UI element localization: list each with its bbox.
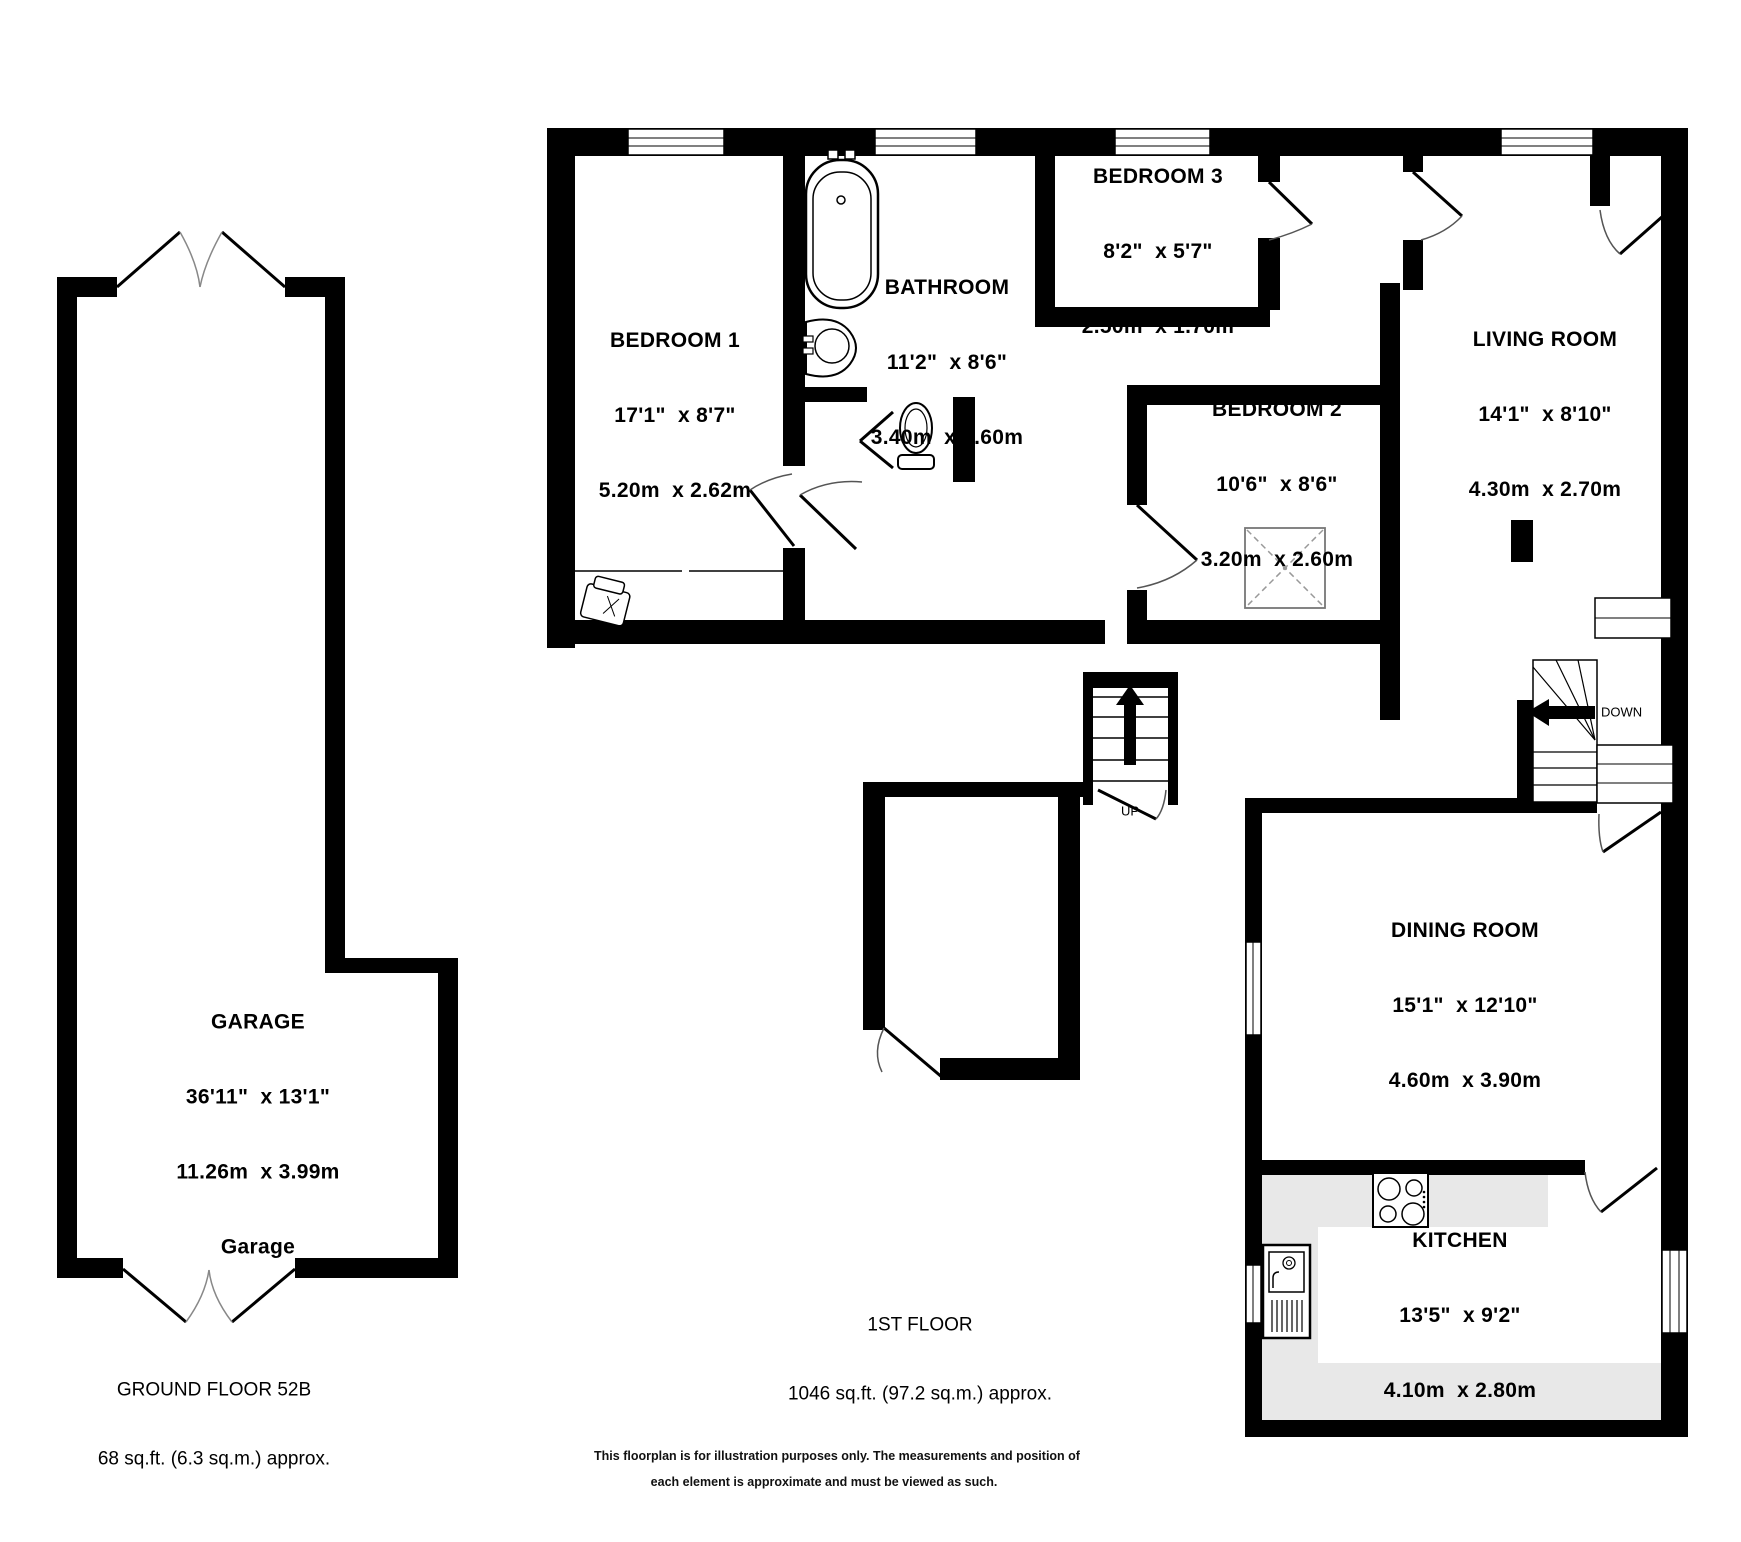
room-dims-metric: 4.30m x 2.70m xyxy=(1469,477,1621,502)
room-dims-imperial: 8'2" x 5'7" xyxy=(1082,239,1234,264)
first-floor-label: 1ST FLOOR 1046 sq.ft. (97.2 sq.m.) appro… xyxy=(788,1268,1052,1429)
room-dims-imperial: 10'6" x 8'6" xyxy=(1201,472,1353,497)
disclaimer-line1: This floorplan is for illustration purpo… xyxy=(594,1449,1080,1463)
bedroom1-label: BEDROOM 1 17'1" x 8'7" 5.20m x 2.62m xyxy=(599,278,751,528)
room-name: GARAGE xyxy=(176,1010,339,1035)
room-dims-imperial: 13'5" x 9'2" xyxy=(1384,1303,1536,1328)
stairs-down-label: DOWN xyxy=(1601,705,1642,720)
bathroom-sink xyxy=(803,320,856,377)
stairs-down xyxy=(1527,598,1673,803)
room-dims-metric: 4.10m x 2.80m xyxy=(1384,1378,1536,1403)
disclaimer-line2: each element is approximate and must be … xyxy=(651,1475,998,1489)
stairs-up-label: UP xyxy=(1121,804,1139,819)
garage-label: GARAGE 36'11" x 13'1" 11.26m x 3.99m Gar… xyxy=(176,960,339,1285)
room-dims-imperial: 17'1" x 8'7" xyxy=(599,403,751,428)
dining-room-label: DINING ROOM 15'1" x 12'10" 4.60m x 3.90m xyxy=(1389,868,1541,1118)
room-name: LIVING ROOM xyxy=(1469,327,1621,352)
room-dims-metric: 11.26m x 3.99m xyxy=(176,1160,339,1185)
floor-name: 1ST FLOOR xyxy=(788,1314,1052,1337)
kitchen-label: KITCHEN 13'5" x 9'2" 4.10m x 2.80m xyxy=(1384,1178,1536,1428)
chair xyxy=(580,574,633,626)
bedroom3-label: BEDROOM 3 8'2" x 5'7" 2.50m x 1.70m xyxy=(1082,114,1234,364)
bathtub xyxy=(806,150,878,308)
garage-sub-label: Garage xyxy=(176,1235,339,1260)
ground-floor-label: GROUND FLOOR 52B 68 sq.ft. (6.3 sq.m.) a… xyxy=(98,1333,330,1494)
room-dims-imperial: 14'1" x 8'10" xyxy=(1469,402,1621,427)
bathroom-label: BATHROOM 11'2" x 8'6" 3.40m x 2.60m xyxy=(871,225,1023,475)
room-name: BEDROOM 3 xyxy=(1082,164,1234,189)
room-dims-imperial: 11'2" x 8'6" xyxy=(871,350,1023,375)
room-dims-metric: 3.40m x 2.60m xyxy=(871,425,1023,450)
floor-name: GROUND FLOOR 52B xyxy=(98,1379,330,1402)
stairs-up xyxy=(1083,672,1178,805)
floorplan-canvas: BEDROOM 1 17'1" x 8'7" 5.20m x 2.62m BAT… xyxy=(0,0,1741,1542)
room-dims-imperial: 15'1" x 12'10" xyxy=(1389,993,1541,1018)
room-dims-imperial: 36'11" x 13'1" xyxy=(176,1085,339,1110)
kitchen-sink xyxy=(1263,1245,1310,1338)
living-room-label: LIVING ROOM 14'1" x 8'10" 4.30m x 2.70m xyxy=(1469,277,1621,527)
room-name: BEDROOM 1 xyxy=(599,328,751,353)
room-name: BATHROOM xyxy=(871,275,1023,300)
floor-area: 68 sq.ft. (6.3 sq.m.) approx. xyxy=(98,1448,330,1471)
room-dims-metric: 3.20m x 2.60m xyxy=(1201,547,1353,572)
room-dims-metric: 2.50m x 1.70m xyxy=(1082,314,1234,339)
bedroom2-label: BEDROOM 2 10'6" x 8'6" 3.20m x 2.60m xyxy=(1201,347,1353,597)
room-dims-metric: 4.60m x 3.90m xyxy=(1389,1068,1541,1093)
room-dims-metric: 5.20m x 2.62m xyxy=(599,478,751,503)
room-name: KITCHEN xyxy=(1384,1228,1536,1253)
room-name: DINING ROOM xyxy=(1389,918,1541,943)
floor-area: 1046 sq.ft. (97.2 sq.m.) approx. xyxy=(788,1383,1052,1406)
room-name: BEDROOM 2 xyxy=(1201,397,1353,422)
